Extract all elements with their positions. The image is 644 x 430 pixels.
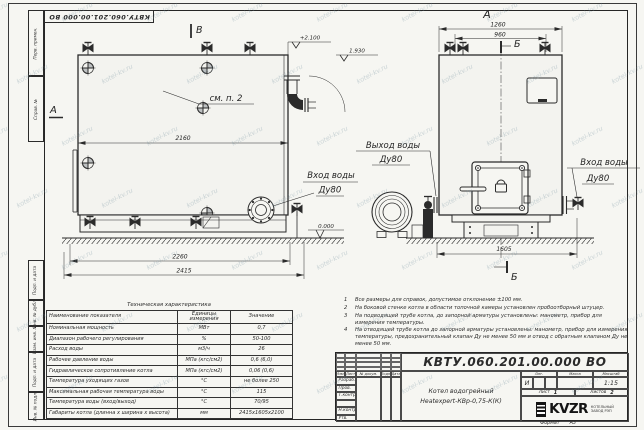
elevation-mark-ground xyxy=(308,230,344,238)
note-text: На подводящей трубе котла, до запорной а… xyxy=(355,313,630,327)
mass-value xyxy=(557,377,593,389)
sig-row-prov: Пров. xyxy=(336,385,356,393)
dim-2415: 2415 xyxy=(176,268,191,275)
view-a-marker-left: А xyxy=(49,105,57,116)
tech-row: Габариты котла (длинна х ширина х высота… xyxy=(47,408,293,419)
see-note-label: см. п. 2 xyxy=(210,94,243,104)
tech-cell-value: 50-100 xyxy=(231,334,293,345)
tech-row: Максимальная рабочая температура воды°С1… xyxy=(47,387,293,398)
tech-cell-units: МВт xyxy=(178,324,231,335)
lit-value: И xyxy=(521,377,533,389)
side-view xyxy=(273,26,640,273)
company-name: КОТЕЛЬНЫЙ ЗАВОД РЭП xyxy=(591,405,614,414)
external-valve-icon xyxy=(292,204,302,239)
tech-header-name: Наименование показателя xyxy=(47,311,178,324)
note-number: 2 xyxy=(344,305,355,312)
company-cell: KVZR КОТЕЛЬНЫЙ ЗАВОД РЭП xyxy=(521,396,629,422)
note-text: Все размеры для справок, допустимое откл… xyxy=(355,297,630,304)
tech-cell-name: Габариты котла (длинна х ширина х высота… xyxy=(47,408,178,419)
tech-row: Рабочее давление водыМПа (кгс/см2)0,6 (6… xyxy=(47,355,293,366)
tech-row: Температура воды (вход/выход)°С70/95 xyxy=(47,398,293,409)
tech-characteristics: Техническая характеристика Наименование … xyxy=(46,302,292,419)
sig-row-razrab: Разраб. xyxy=(336,377,356,385)
tech-cell-units: % xyxy=(178,334,231,345)
scale-value: 1:15 xyxy=(593,377,629,389)
elevation-mark-top xyxy=(288,42,331,55)
tech-cell-name: Диапазон рабочего регулирования xyxy=(47,334,178,345)
note-number: 4 xyxy=(344,327,355,348)
format-note: Формат А3 xyxy=(498,421,618,426)
elevation-mark-pipe xyxy=(336,55,378,61)
sheets-label: Листов xyxy=(590,390,606,395)
outlet-elbow xyxy=(284,76,345,112)
sig-row-nkontr: Н.контр. xyxy=(336,407,356,415)
amendment-grid xyxy=(336,353,401,371)
side-inlet-dn-label: Ду80 xyxy=(586,174,610,184)
product-name-line1: Котел водогрейный xyxy=(429,387,494,397)
sig-col-docnum-empty xyxy=(356,377,381,422)
tech-row: Расход водым3/ч26 xyxy=(47,345,293,356)
door-handle xyxy=(460,187,486,191)
air-valve-icon xyxy=(445,43,550,56)
note-item: 4На отводящей трубе котла до запорной ар… xyxy=(344,327,630,348)
format-value: А3 xyxy=(570,421,576,426)
flue-outlet-icon xyxy=(372,192,423,238)
tech-table: Наименование показателя Единицы измерени… xyxy=(46,310,293,419)
kvzr-logo-text: KVZR xyxy=(549,401,588,417)
sig-row-utv: Утв. xyxy=(336,415,356,423)
front-view xyxy=(49,24,378,279)
tech-cell-value: 26 xyxy=(231,345,293,356)
sig-row-tkontr: Т.контр. xyxy=(336,392,356,400)
tech-cell-units: °С xyxy=(178,387,231,398)
drawing-sheet: { "page": { "watermark": "kotel-kv.ru", … xyxy=(0,0,644,430)
note-text: На боковой стенке котла в области топочн… xyxy=(355,305,630,312)
dim-2260: 2260 xyxy=(172,254,187,261)
sig-row-blank xyxy=(336,400,356,408)
tech-row: Номинальная мощностьМВт0,7 xyxy=(47,324,293,335)
tech-cell-value: 115 xyxy=(231,387,293,398)
format-label: Формат xyxy=(540,421,559,426)
tech-table-title: Техническая характеристика xyxy=(46,302,292,308)
sig-col-podp-empty xyxy=(381,377,391,422)
tech-cell-units: м3/ч xyxy=(178,345,231,356)
tech-row: Температура уходящих газов°Сне более 250 xyxy=(47,376,293,387)
tech-cell-units: мм xyxy=(178,408,231,419)
front-inlet-label: Вход воды xyxy=(307,171,355,181)
tech-cell-value: 0,7 xyxy=(231,324,293,335)
dim-1260: 1260 xyxy=(490,22,505,29)
dim-2160: 2160 xyxy=(175,135,190,142)
notes-list: 1Все размеры для справок, допустимое отк… xyxy=(344,297,630,349)
side-base-frame xyxy=(452,215,550,238)
tech-header-value: Значение xyxy=(231,311,293,324)
dim-960: 960 xyxy=(494,32,506,39)
tech-row: Гидравлическое сопротивление котлаМПа (к… xyxy=(47,366,293,377)
note-number: 1 xyxy=(344,297,355,304)
section-b-marker-bottom: Б xyxy=(511,272,518,283)
outlet-valve xyxy=(423,197,437,239)
tech-table-header: Наименование показателя Единицы измерени… xyxy=(47,311,293,324)
title-block: Изм. Лист № докум. Подп. Дата Разраб. Пр… xyxy=(335,352,628,421)
access-hatch xyxy=(527,78,557,103)
tech-cell-units: °С xyxy=(178,398,231,409)
tech-cell-value: 2415х1605х2100 xyxy=(231,408,293,419)
sheets-cell: Листов2 xyxy=(575,389,629,396)
kvzr-logo-icon xyxy=(536,402,546,417)
tech-cell-name: Максимальная рабочая температура воды xyxy=(47,387,178,398)
elev-1930-label: 1.930 xyxy=(349,49,365,55)
product-name: Котел водогрейный Heatexpert-КВр-0,75-К(… xyxy=(401,371,521,422)
section-b-marker-top: Б xyxy=(514,39,521,50)
section-b-marker-front: В xyxy=(196,25,203,36)
dim-1605: 1605 xyxy=(496,246,511,253)
tech-row: Диапазон рабочего регулирования%50-100 xyxy=(47,334,293,345)
outlet-dn-label: Ду80 xyxy=(379,155,403,165)
tech-cell-units: МПа (кгс/см2) xyxy=(178,366,231,377)
sheets-value: 2 xyxy=(610,390,613,396)
tech-cell-value: 70/95 xyxy=(231,398,293,409)
tech-cell-name: Номинальная мощность xyxy=(47,324,178,335)
tech-cell-name: Гидравлическое сопротивление котла xyxy=(47,366,178,377)
note-item: 1Все размеры для справок, допустимое отк… xyxy=(344,297,630,304)
lit-cell-3 xyxy=(545,377,557,389)
company-name-line2: ЗАВОД РЭП xyxy=(591,409,614,413)
note-item: 3На подводящей трубе котла, до запорной … xyxy=(344,313,630,327)
front-inlet-dn-label: Ду80 xyxy=(318,186,342,196)
tech-cell-name: Рабочее давление воды xyxy=(47,355,178,366)
lit-cell-2 xyxy=(533,377,545,389)
tech-cell-name: Температура уходящих газов xyxy=(47,376,178,387)
tech-cell-value: 0,06 (0,6) xyxy=(231,366,293,377)
tech-cell-name: Температура воды (вход/выход) xyxy=(47,398,178,409)
note-item: 2На боковой стенке котла в области топоч… xyxy=(344,305,630,312)
product-name-line2: Heatexpert-КВр-0,75-К(К) xyxy=(420,397,502,407)
sig-col-data-empty xyxy=(391,377,401,422)
inlet-nozzle xyxy=(563,196,583,214)
sheet-cell: Лист1 xyxy=(521,389,575,396)
note-text: На отводящей трубе котла до запорной арм… xyxy=(355,327,630,348)
sheet-label: Лист xyxy=(539,390,550,395)
elev-0000-label: 0.000 xyxy=(318,224,334,230)
tech-header-units: Единицы измерения xyxy=(178,311,231,324)
tech-cell-value: 0,6 (6,0) xyxy=(231,355,293,366)
side-inlet-label: Вход воды xyxy=(580,158,628,168)
outlet-label: Выход воды xyxy=(366,141,420,151)
sheet-value: 1 xyxy=(554,390,557,396)
tech-cell-value: не более 250 xyxy=(231,376,293,387)
inlet-flange-icon xyxy=(248,197,274,223)
air-valve-icon xyxy=(83,43,255,56)
tech-cell-units: °С xyxy=(178,376,231,387)
tech-cell-name: Расход воды xyxy=(47,345,178,356)
document-number: КВТУ.060.201.00.000 ВО xyxy=(401,353,629,371)
elev-2100-label: +2.100 xyxy=(300,36,321,42)
tech-cell-units: МПа (кгс/см2) xyxy=(178,355,231,366)
view-a-label: А xyxy=(482,8,491,21)
note-number: 3 xyxy=(344,313,355,327)
